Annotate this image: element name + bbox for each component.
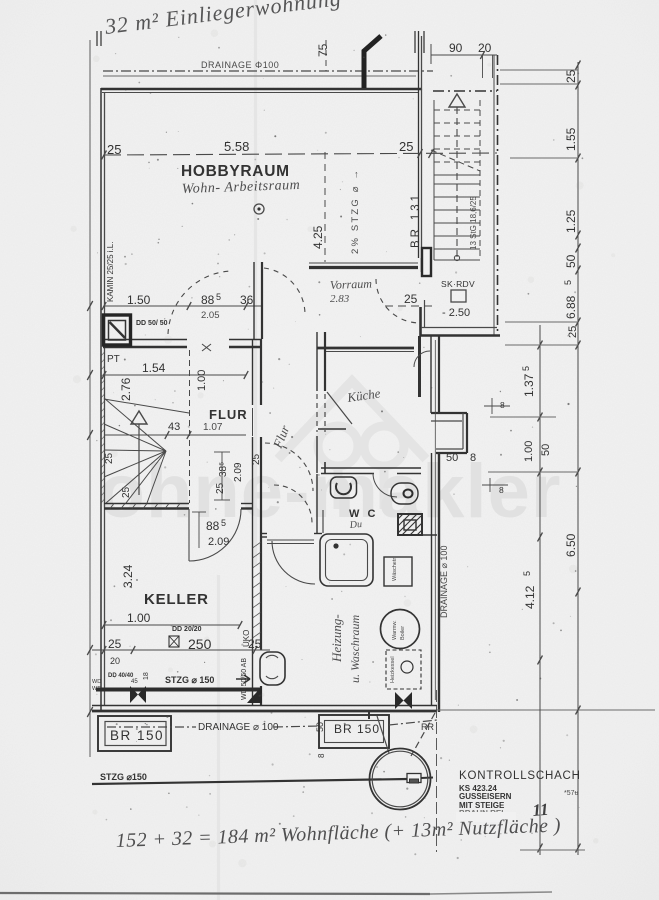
svg-text:8: 8: [499, 485, 504, 495]
svg-text:u. Waschraum: u. Waschraum: [348, 614, 362, 683]
svg-text:DRAINAGE ⌀ 100: DRAINAGE ⌀ 100: [439, 546, 449, 618]
svg-text:Heizung-: Heizung-: [329, 614, 344, 663]
svg-text:38⁵: 38⁵: [218, 462, 229, 477]
svg-text:Warmw.: Warmw.: [392, 620, 398, 640]
svg-text:5: 5: [216, 292, 221, 302]
svg-text:BR 150: BR 150: [334, 722, 380, 736]
svg-text:WD: WD: [92, 679, 101, 685]
svg-text:25: 25: [107, 142, 121, 157]
svg-text:WD 50/50 AB: WD 50/50 AB: [241, 658, 248, 700]
svg-text:1.00: 1.00: [127, 611, 151, 625]
svg-text:8: 8: [470, 452, 476, 464]
svg-text:DD 20/20: DD 20/20: [172, 626, 202, 633]
svg-text:1.25: 1.25: [564, 209, 578, 233]
svg-text:88: 88: [201, 293, 215, 307]
svg-text:2.05: 2.05: [201, 310, 220, 321]
svg-text:8: 8: [500, 400, 505, 410]
svg-text:1.55: 1.55: [564, 127, 578, 151]
svg-text:1.00: 1.00: [523, 441, 535, 462]
svg-text:90: 90: [449, 41, 463, 55]
svg-text:GUSSEISERN: GUSSEISERN: [459, 792, 512, 801]
svg-text:W C: W C: [349, 508, 378, 520]
svg-text:50: 50: [446, 452, 458, 464]
svg-text:45: 45: [131, 679, 138, 685]
svg-text:25: 25: [567, 326, 579, 338]
svg-text:2.76: 2.76: [119, 377, 133, 401]
svg-text:2.09: 2.09: [233, 462, 244, 482]
svg-text:25: 25: [215, 482, 226, 494]
svg-text:25: 25: [404, 292, 418, 306]
svg-text:KAMIN 25/25 i.L.: KAMIN 25/25 i.L.: [106, 242, 115, 302]
svg-text:DD 50/ 50: DD 50/ 50: [136, 320, 168, 327]
svg-text:88: 88: [206, 519, 220, 533]
svg-text:STZG ⌀150: STZG ⌀150: [100, 772, 147, 782]
svg-text:6.88: 6.88: [564, 295, 578, 319]
svg-text:4.12: 4.12: [523, 585, 537, 609]
svg-text:20: 20: [110, 656, 120, 666]
svg-text:3.24: 3.24: [121, 564, 135, 588]
svg-text:18: 18: [143, 672, 150, 680]
svg-text:20: 20: [478, 41, 492, 55]
svg-text:75: 75: [316, 43, 330, 57]
svg-text:Wäschetr.: Wäschetr.: [392, 556, 398, 581]
svg-text:Vorraum: Vorraum: [330, 277, 373, 292]
svg-text:8: 8: [317, 753, 326, 758]
svg-text:FLUR: FLUR: [209, 407, 248, 422]
svg-text:BR 150: BR 150: [110, 728, 164, 743]
svg-text:STZG ⌀ 150: STZG ⌀ 150: [165, 675, 214, 685]
svg-text:50: 50: [564, 254, 578, 268]
svg-text:Heizkessel: Heizkessel: [390, 656, 396, 683]
svg-text:2% STZG ⌀ →: 2% STZG ⌀ →: [350, 170, 361, 254]
svg-text:KELLER: KELLER: [144, 591, 209, 608]
svg-text:*57ʉ: *57ʉ: [564, 790, 579, 797]
svg-text:Du: Du: [348, 519, 362, 531]
svg-text:DRAINAGE Φ100: DRAINAGE Φ100: [201, 60, 279, 70]
svg-text:HOBBYRAUM: HOBBYRAUM: [181, 163, 289, 180]
svg-text:50: 50: [315, 722, 325, 732]
svg-text:5: 5: [563, 280, 573, 285]
svg-text:PT: PT: [107, 354, 120, 365]
svg-text:KONTROLLSCHACH: KONTROLLSCHACH: [459, 770, 581, 782]
svg-text:1.54: 1.54: [142, 361, 166, 375]
svg-text:DRAINAGE ⌀ 100: DRAINAGE ⌀ 100: [198, 722, 279, 733]
svg-text:2.83: 2.83: [330, 293, 350, 305]
svg-text:25: 25: [108, 637, 122, 651]
svg-text:25: 25: [399, 139, 413, 154]
svg-text:5: 5: [521, 366, 531, 371]
svg-text:43: 43: [168, 421, 180, 433]
svg-text:1.50: 1.50: [127, 293, 151, 307]
svg-text:13 StG 18,6/25: 13 StG 18,6/25: [469, 196, 478, 250]
svg-text:5: 5: [221, 518, 226, 528]
svg-text:5: 5: [522, 571, 532, 576]
svg-text:2.09: 2.09: [208, 536, 229, 548]
svg-text:36: 36: [240, 293, 254, 307]
svg-text:SK·RDV: SK·RDV: [441, 279, 475, 289]
svg-text:1.07: 1.07: [203, 422, 223, 433]
svg-text:1.00: 1.00: [196, 370, 208, 391]
svg-text:- 2.50: - 2.50: [442, 307, 470, 319]
svg-text:25: 25: [564, 69, 578, 83]
svg-text:6.50: 6.50: [564, 533, 578, 557]
svg-text:50: 50: [540, 444, 552, 456]
svg-text:1.37: 1.37: [522, 373, 536, 397]
svg-text:25: 25: [251, 453, 262, 465]
svg-text:Boiler: Boiler: [400, 626, 406, 640]
